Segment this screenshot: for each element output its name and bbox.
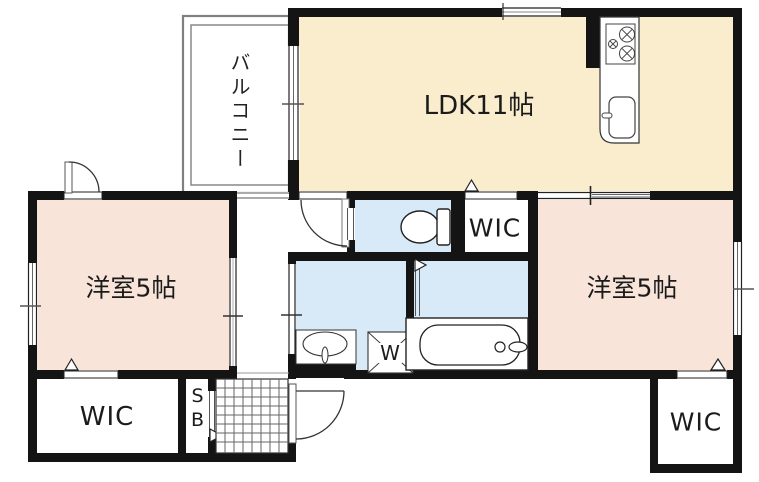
- hallway-balcony-window: [237, 192, 289, 199]
- door-swing-arc: [69, 162, 99, 192]
- washing-machine-label: W: [378, 343, 402, 363]
- entrance-door-icon: [289, 378, 344, 443]
- wic-bottom-right-label: WIC: [670, 410, 723, 435]
- bedroom-right-label: 洋室5帖: [587, 276, 678, 301]
- bedroom-left-label: 洋室5帖: [86, 276, 177, 301]
- toilet-icon: [401, 209, 450, 245]
- kitchen-counter: [600, 17, 639, 143]
- door-swing-arc: [301, 200, 347, 246]
- kitchen-wall-stub: [586, 13, 600, 68]
- shoe-box-label: SB: [188, 385, 207, 433]
- bedroom-right-window: [732, 242, 754, 335]
- bathtub-icon: [406, 318, 528, 370]
- bedroom-left-window: [20, 263, 41, 345]
- genkan-tiles: [216, 373, 289, 453]
- balcony-label: バルコニー: [229, 52, 249, 172]
- wic-bottom-left-label: WIC: [80, 404, 135, 430]
- door-swing-arc: [296, 391, 344, 439]
- bedroom-left-exterior-door: [64, 162, 102, 199]
- floor-plan: バルコニー LDK11帖 洋室5帖 洋室5帖 WIC WIC WIC SB W: [0, 0, 759, 482]
- toilet-door: [346, 208, 355, 240]
- washbasin-icon: [296, 330, 356, 364]
- wic-middle-label: WIC: [469, 216, 522, 241]
- gas-stove-icon: [606, 24, 635, 64]
- ldk-hallway-door: [299, 192, 349, 247]
- ldk-label: LDK11帖: [424, 93, 535, 119]
